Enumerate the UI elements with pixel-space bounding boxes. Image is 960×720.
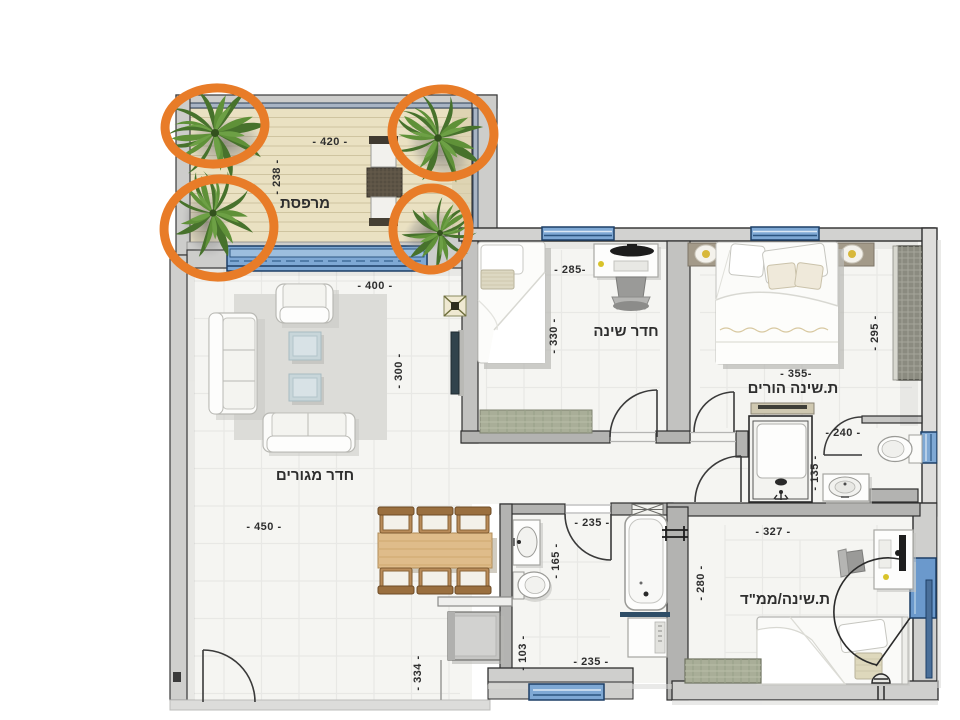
svg-text:- 300 -: - 300 - [393, 353, 405, 388]
svg-text:ת.שינה/ממ"ד: ת.שינה/ממ"ד [740, 591, 830, 608]
svg-text:- 285-: - 285- [554, 264, 586, 276]
svg-text:מרפסת: מרפסת [280, 195, 330, 212]
svg-text:ת.שינה הורים: ת.שינה הורים [748, 380, 839, 397]
svg-text:חדר מגורים: חדר מגורים [276, 467, 354, 484]
svg-text:- 235 -: - 235 - [574, 517, 609, 529]
svg-text:- 165 -: - 165 - [550, 543, 562, 578]
svg-text:- 235 -: - 235 - [573, 656, 608, 668]
svg-text:- 330 -: - 330 - [548, 318, 560, 353]
svg-text:- 240 -: - 240 - [825, 427, 860, 439]
svg-text:- 103 -: - 103 - [517, 635, 529, 670]
svg-text:- 135 -: - 135 - [809, 455, 821, 490]
svg-text:- 280 -: - 280 - [695, 565, 707, 600]
svg-text:- 420 -: - 420 - [312, 136, 347, 148]
svg-text:- 238 -: - 238 - [271, 159, 283, 194]
svg-text:- 450 -: - 450 - [246, 521, 281, 533]
svg-text:- 400 -: - 400 - [357, 280, 392, 292]
svg-text:- 355-: - 355- [780, 368, 812, 380]
svg-text:חדר שינה: חדר שינה [593, 323, 658, 340]
svg-text:- 327 -: - 327 - [755, 526, 790, 538]
svg-text:- 334 -: - 334 - [412, 655, 424, 690]
svg-text:- 295 -: - 295 - [869, 315, 881, 350]
